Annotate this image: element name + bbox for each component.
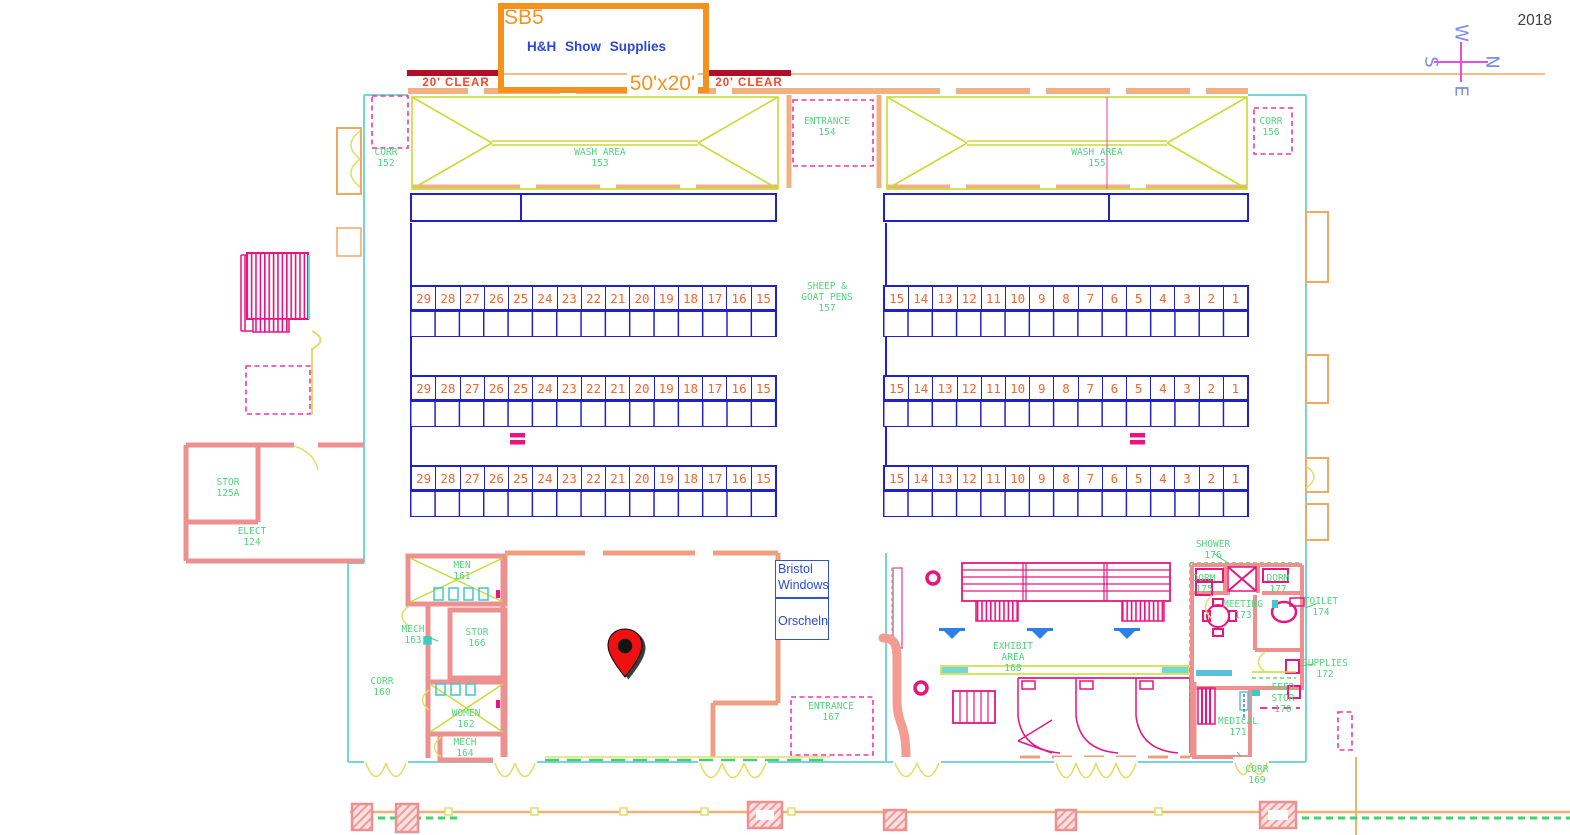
right-edge-alcoves	[1306, 212, 1328, 540]
compass-south: S	[1421, 56, 1442, 67]
pen-number: 20	[629, 377, 653, 399]
pen-number: 9	[1029, 287, 1053, 309]
pen-number: 23	[557, 377, 581, 399]
direction-arrows	[939, 628, 1140, 639]
room-label-dorm-175: DORM175	[1193, 573, 1216, 595]
pen-number: 4	[1150, 467, 1174, 489]
room-label-women-162: WOMEN162	[452, 708, 481, 730]
room-label-corr-160: CORR160	[371, 676, 394, 698]
room-label-dorm-177: DORM177	[1267, 573, 1290, 595]
pen-number: 6	[1102, 377, 1126, 399]
pen-number: 1	[1223, 287, 1247, 309]
room-label-exhibit-area-168: EXHIBITAREA168	[993, 641, 1033, 675]
pen-number: 11	[981, 467, 1005, 489]
pen-number: 8	[1053, 377, 1077, 399]
pen-number: 2	[1199, 287, 1223, 309]
pen-number: 27	[460, 377, 484, 399]
pen-number: 10	[1005, 377, 1029, 399]
room-label-corr-169: CORR169	[1246, 764, 1269, 786]
pen-number: 13	[932, 467, 956, 489]
pen-number: 7	[1078, 467, 1102, 489]
pen-number: 4	[1150, 287, 1174, 309]
animal-gates	[1018, 678, 1194, 757]
pen-number: 26	[484, 287, 508, 309]
pen-number: 29	[412, 287, 435, 309]
pen-row-right-2-stalls	[883, 401, 1249, 427]
pen-number: 28	[435, 467, 459, 489]
pen-number: 26	[484, 377, 508, 399]
pen-number: 7	[1078, 287, 1102, 309]
pen-number: 9	[1029, 377, 1053, 399]
pen-number: 22	[581, 377, 605, 399]
annex-walls	[186, 445, 364, 561]
pen-number: 14	[908, 467, 932, 489]
compass-west: W	[1451, 24, 1472, 42]
booth-orscheln[interactable]: Orscheln	[775, 598, 829, 640]
exhibit-section	[883, 553, 939, 762]
clearance-label-right: 20' CLEAR	[715, 77, 782, 89]
room-label-stor-166: STOR166	[466, 627, 489, 649]
pen-number: 12	[957, 287, 981, 309]
floorplan-linework	[0, 0, 1570, 835]
pen-number: 29	[412, 467, 435, 489]
pen-number: 1	[1223, 377, 1247, 399]
pen-number: 3	[1174, 467, 1198, 489]
pen-number: 6	[1102, 287, 1126, 309]
pen-band-right	[883, 193, 1249, 222]
room-label-medical-171: MEDICAL171	[1218, 716, 1258, 738]
pen-number: 8	[1053, 467, 1077, 489]
room-label-mech-164: MECH164	[454, 737, 477, 759]
room-label-corr-156: CORR156	[1260, 116, 1283, 138]
wall-door-gaps	[468, 86, 1206, 192]
pen-number: 22	[581, 287, 605, 309]
pen-number: 21	[605, 287, 629, 309]
pen-number: 15	[885, 287, 908, 309]
pen-row-right-1-stalls	[883, 311, 1249, 337]
pen-row-left-3-stalls	[410, 491, 777, 517]
pen-number: 10	[1005, 467, 1029, 489]
pen-number: 13	[932, 377, 956, 399]
pen-row-right-2: 151413121110987654321	[883, 375, 1249, 401]
pen-number: 16	[726, 377, 750, 399]
stall-comb	[953, 691, 995, 723]
pen-number: 28	[435, 377, 459, 399]
pen-row-left-3: 292827262524232221201918171615	[410, 465, 777, 491]
pen-number: 2	[1199, 467, 1223, 489]
pen-number: 22	[581, 467, 605, 489]
pen-number: 5	[1126, 467, 1150, 489]
pen-number: 12	[957, 467, 981, 489]
pen-number: 10	[1005, 287, 1029, 309]
pen-number: 27	[460, 287, 484, 309]
pen-number: 23	[557, 467, 581, 489]
vendor-name-line: Windows	[778, 578, 828, 594]
pen-number: 14	[908, 287, 932, 309]
room-label-corr-152: CORR152	[375, 147, 398, 169]
pen-number: 29	[412, 377, 435, 399]
room-label-shower-176: SHOWER176	[1196, 539, 1230, 561]
pen-number: 25	[508, 287, 532, 309]
pen-number: 9	[1029, 467, 1053, 489]
pen-number: 11	[981, 287, 1005, 309]
room-label-mech-163: MECH163	[402, 624, 425, 646]
pen-number: 16	[726, 467, 750, 489]
pen-number: 24	[532, 377, 556, 399]
pen-number: 13	[932, 287, 956, 309]
pen-number: 20	[629, 287, 653, 309]
pen-number: 18	[678, 467, 702, 489]
wash-area-153-lines	[412, 97, 778, 189]
pen-number: 24	[532, 467, 556, 489]
pen-number: 25	[508, 467, 532, 489]
pen-row-left-2: 292827262524232221201918171615	[410, 375, 777, 401]
booth-size-label: 50'x20'	[627, 72, 698, 96]
pen-number: 4	[1150, 377, 1174, 399]
pen-band-divider	[520, 195, 522, 220]
pen-number: 19	[654, 377, 678, 399]
bleachers	[962, 563, 1170, 621]
booth-bristol-windows[interactable]: Bristol Windows	[775, 560, 829, 598]
pen-band-left	[410, 193, 777, 222]
pen-number: 27	[460, 467, 484, 489]
pen-row-right-1: 151413121110987654321	[883, 285, 1249, 311]
pen-number: 6	[1102, 467, 1126, 489]
room-label-entrance-167: ENTRANCE167	[808, 701, 854, 723]
compass-north: N	[1482, 55, 1503, 68]
pen-number: 15	[751, 287, 775, 309]
clearance-label-left: 20' CLEAR	[422, 77, 489, 89]
pen-number: 23	[557, 287, 581, 309]
pen-number: 26	[484, 467, 508, 489]
label-leader-lines	[425, 553, 1316, 768]
room-label-stor-125a: STOR125A	[217, 477, 240, 499]
room-label-men-161: MEN161	[453, 560, 470, 582]
room-label-sheep-goat-pens-157: SHEEP &GOAT PENS157	[801, 281, 852, 315]
pen-number: 8	[1053, 287, 1077, 309]
pen-number: 19	[654, 287, 678, 309]
vendor-name-line: Orscheln	[778, 614, 828, 630]
pen-number: 12	[957, 377, 981, 399]
year-label: 2018	[1518, 12, 1552, 30]
room-label-feed-stor-170: FEEDSTOR170	[1272, 682, 1295, 716]
pen-number: 17	[702, 467, 726, 489]
pen-row-left-2-stalls	[410, 401, 777, 427]
pen-number: 24	[532, 287, 556, 309]
pen-number: 16	[726, 287, 750, 309]
pen-number: 15	[751, 377, 775, 399]
pen-row-left-1: 292827262524232221201918171615	[410, 285, 777, 311]
pen-number: 28	[435, 287, 459, 309]
pen-number: 17	[702, 287, 726, 309]
compass-cross-icon	[1434, 42, 1488, 82]
pen-number: 3	[1174, 287, 1198, 309]
pen-number: 20	[629, 467, 653, 489]
room-label-toilet-174: TOILET174	[1304, 596, 1338, 618]
pen-number: 2	[1199, 377, 1223, 399]
pen-number: 5	[1126, 377, 1150, 399]
wash-area-155-lines	[887, 97, 1247, 189]
pen-number: 21	[605, 377, 629, 399]
location-pin-icon[interactable]	[608, 629, 646, 680]
left-bleacher-structure	[241, 253, 309, 332]
pen-row-left-1-stalls	[410, 311, 777, 337]
exhibit-strip	[941, 666, 1189, 674]
compass-east: E	[1451, 85, 1472, 96]
pen-number: 3	[1174, 377, 1198, 399]
room-label-elect-124: ELECT124	[238, 526, 267, 548]
pen-number: 25	[508, 377, 532, 399]
pen-row-right-3: 151413121110987654321	[883, 465, 1249, 491]
room-label-entrance-154: ENTRANCE154	[804, 116, 850, 138]
room-label-meeting-173: MEETING173	[1223, 599, 1263, 621]
pen-number: 14	[908, 377, 932, 399]
pen-number: 1	[1223, 467, 1247, 489]
booth-sb5[interactable]: SB5 H&H Show Supplies 50'x20'	[501, 6, 706, 90]
floorplan-canvas: 292827262524232221201918171615 292827262…	[0, 0, 1570, 835]
room-label-wash-area-155: WASH AREA155	[1071, 147, 1122, 169]
tan-walls	[408, 91, 1248, 188]
room-label-wash-area-153: WASH AREA153	[574, 147, 625, 169]
booth-vendor-label: H&H Show Supplies	[527, 39, 666, 54]
pen-number: 15	[885, 467, 908, 489]
pen-band-divider	[1108, 195, 1110, 220]
pen-number: 17	[702, 377, 726, 399]
pen-number: 15	[751, 467, 775, 489]
pen-number: 18	[678, 287, 702, 309]
vendor-name-line: Bristol	[778, 562, 828, 578]
annex-door	[294, 440, 318, 470]
pen-number: 19	[654, 467, 678, 489]
pen-number: 5	[1126, 287, 1150, 309]
pen-number: 21	[605, 467, 629, 489]
booth-id-label: SB5	[504, 6, 544, 30]
pen-row-right-3-stalls	[883, 491, 1249, 517]
pen-number: 7	[1078, 377, 1102, 399]
left-wall-features	[312, 128, 361, 415]
pen-number: 18	[678, 377, 702, 399]
pen-number: 11	[981, 377, 1005, 399]
pen-number: 15	[885, 377, 908, 399]
room-label-supplies-172: SUPPLIES172	[1302, 658, 1348, 680]
